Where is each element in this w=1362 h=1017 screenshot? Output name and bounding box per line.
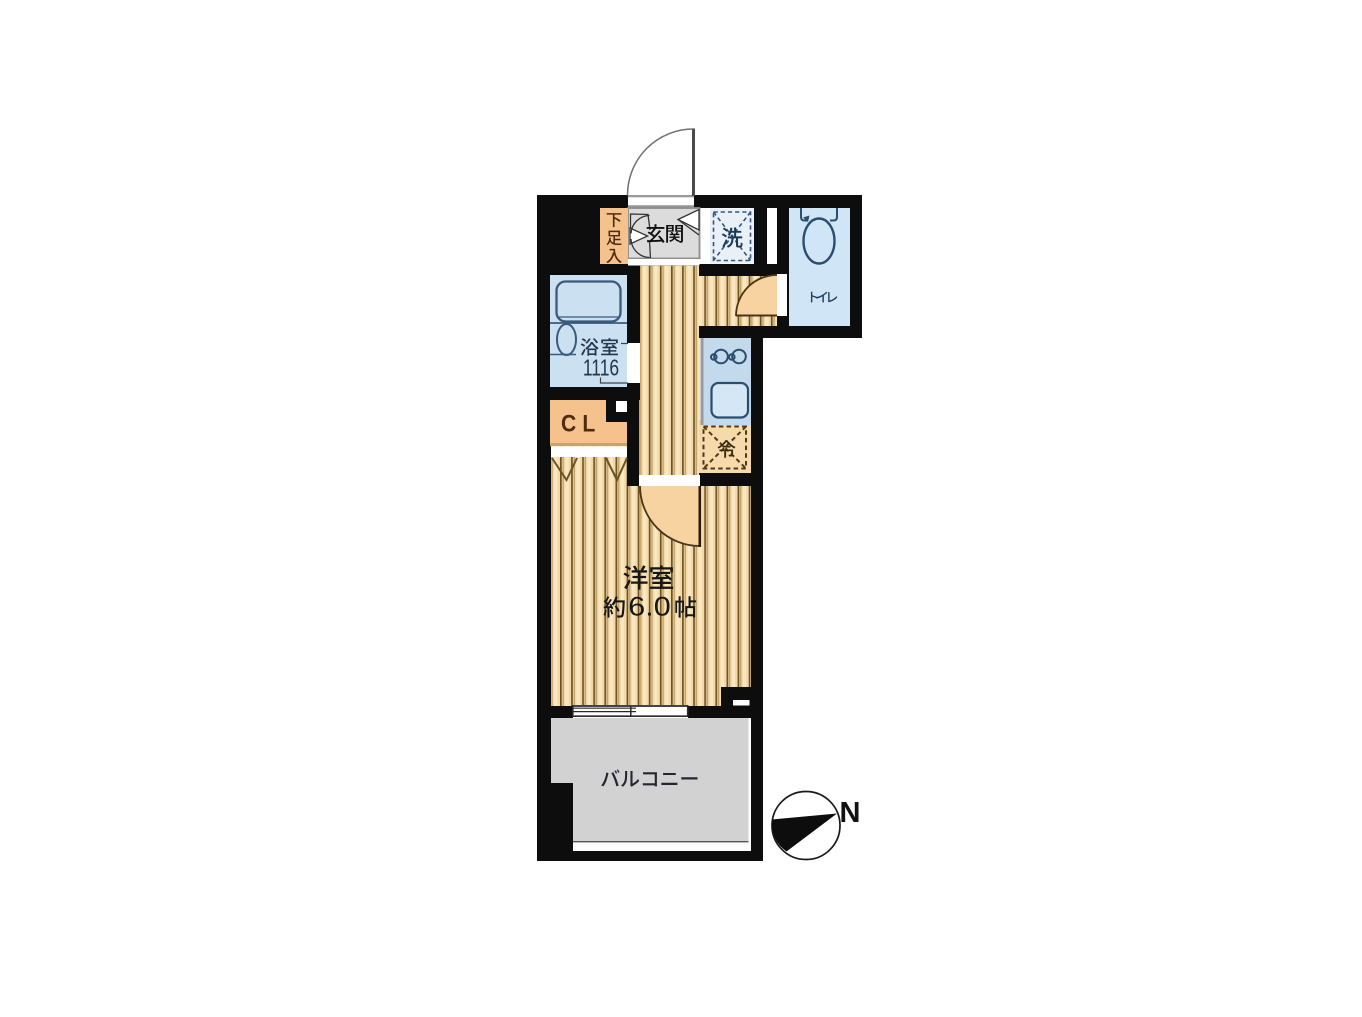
svg-text:1116: 1116: [583, 356, 619, 381]
svg-text:N: N: [840, 797, 861, 829]
svg-text:CL: CL: [561, 410, 601, 437]
svg-text:6.0: 6.0: [628, 592, 670, 622]
